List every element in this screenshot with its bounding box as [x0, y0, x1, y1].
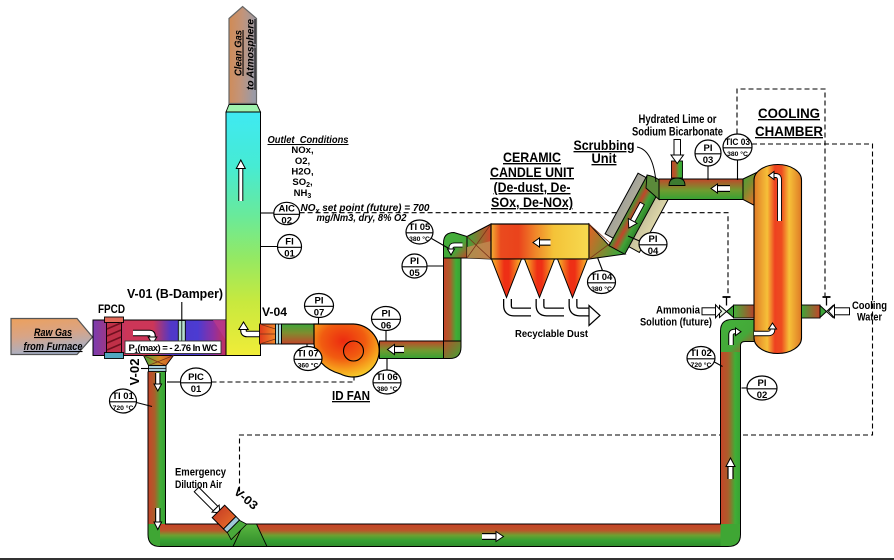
svg-text:06: 06 — [381, 320, 392, 331]
svg-text:NOx,: NOx, — [291, 145, 313, 156]
svg-text:720 °C: 720 °C — [691, 361, 712, 369]
svg-text:03: 03 — [703, 155, 714, 166]
svg-text:Solution (future): Solution (future) — [640, 317, 712, 329]
svg-text:Emergency: Emergency — [175, 467, 227, 479]
svg-text:PI: PI — [315, 295, 324, 306]
svg-text:V-02: V-02 — [128, 358, 142, 385]
svg-text:360 °C: 360 °C — [298, 362, 319, 370]
svg-text:P1(max) = - 2.76 In WC: P1(max) = - 2.76 In WC — [129, 343, 218, 355]
svg-text:to Atmosphere: to Atmosphere — [245, 19, 257, 90]
svg-text:from Furnace: from Furnace — [24, 341, 83, 353]
svg-text:720 °C: 720 °C — [113, 404, 134, 412]
svg-text:380 °C: 380 °C — [727, 150, 748, 158]
svg-text:(De-dust, De-: (De-dust, De- — [494, 179, 571, 195]
svg-text:04: 04 — [648, 246, 659, 257]
svg-text:V-03: V-03 — [231, 485, 261, 513]
svg-text:Recyclable Dust: Recyclable Dust — [515, 328, 588, 340]
svg-text:05: 05 — [409, 268, 420, 279]
svg-text:Cooling: Cooling — [852, 300, 887, 312]
svg-text:TI 05: TI 05 — [409, 222, 431, 233]
svg-text:H2O,: H2O, — [291, 167, 313, 178]
svg-text:Dilution Air: Dilution Air — [175, 479, 223, 491]
svg-text:380 °C: 380 °C — [377, 385, 398, 393]
svg-text:02: 02 — [757, 390, 768, 401]
svg-text:SOx, De-NOx): SOx, De-NOx) — [491, 194, 573, 210]
svg-text:Ammonia: Ammonia — [656, 305, 701, 317]
svg-text:TI 06: TI 06 — [376, 372, 398, 383]
svg-text:380 °C: 380 °C — [409, 235, 430, 243]
svg-text:V-01 (B-Damper): V-01 (B-Damper) — [127, 286, 223, 301]
svg-text:ID FAN: ID FAN — [332, 388, 370, 403]
svg-text:TI 01: TI 01 — [112, 391, 134, 402]
svg-text:PI: PI — [704, 143, 713, 154]
svg-text:V-04: V-04 — [262, 305, 287, 319]
svg-text:mg/Nm3, dry, 8% O2: mg/Nm3, dry, 8% O2 — [317, 213, 408, 224]
svg-text:TIC 03: TIC 03 — [725, 137, 750, 148]
svg-text:TI 04: TI 04 — [591, 272, 613, 283]
svg-text:02: 02 — [281, 215, 292, 226]
svg-text:CHAMBER: CHAMBER — [755, 124, 823, 139]
svg-text:FI: FI — [285, 236, 293, 247]
svg-text:AIC: AIC — [279, 203, 296, 214]
svg-text:TI 02: TI 02 — [690, 348, 712, 359]
svg-text:O2,: O2, — [295, 156, 310, 167]
svg-text:TI 07: TI 07 — [297, 348, 319, 359]
svg-text:PIC: PIC — [188, 372, 204, 383]
svg-text:01: 01 — [284, 248, 295, 259]
svg-text:Water: Water — [857, 312, 883, 324]
svg-text:Clean Gas: Clean Gas — [233, 30, 245, 76]
svg-text:PI: PI — [758, 378, 767, 389]
svg-text:Sodium Bicarbonate: Sodium Bicarbonate — [632, 127, 723, 139]
svg-text:COOLING: COOLING — [758, 106, 820, 121]
svg-text:NH3: NH3 — [294, 188, 312, 200]
svg-text:380 °C: 380 °C — [591, 285, 612, 293]
svg-text:07: 07 — [314, 307, 325, 318]
svg-text:CANDLE UNIT: CANDLE UNIT — [490, 164, 574, 180]
svg-text:PI: PI — [649, 234, 658, 245]
svg-text:01: 01 — [191, 384, 202, 395]
svg-text:FPCD: FPCD — [98, 304, 125, 316]
svg-text:PI: PI — [410, 256, 419, 267]
svg-text:Hydrated Lime or: Hydrated Lime or — [639, 114, 717, 126]
svg-text:PI: PI — [382, 308, 391, 319]
svg-text:Unit: Unit — [592, 151, 617, 166]
svg-text:CERAMIC: CERAMIC — [503, 149, 561, 165]
svg-text:Raw Gas: Raw Gas — [34, 327, 72, 339]
